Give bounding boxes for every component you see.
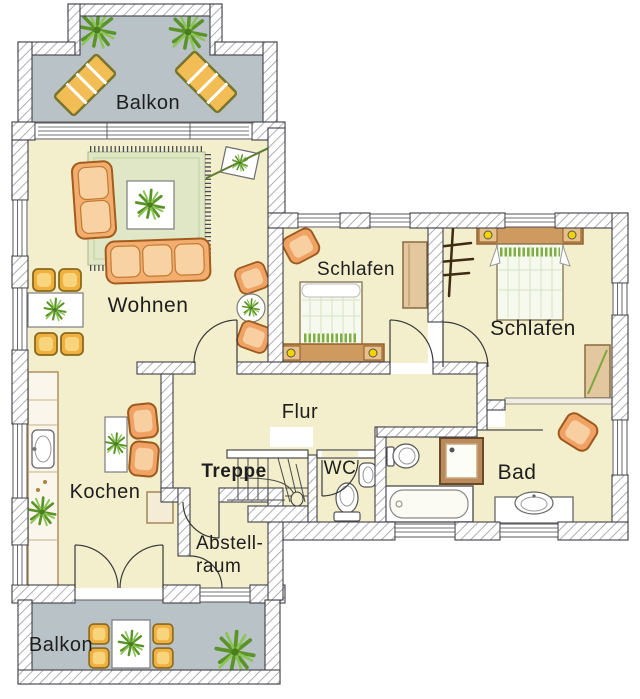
room-label-abstellraum-line1: Abstell- [196,533,263,554]
coffee-table [127,181,174,229]
kitchen-counter [28,372,58,588]
floor-plan: Balkon Wohnen Schlafen Schlafen Flur Tre… [0,0,640,699]
room-label-schlafen-large: Schlafen [490,317,576,340]
sofa-two-seat [71,161,116,240]
sofa-three-seat [105,238,210,284]
toilet [334,483,360,521]
room-label-balkon-top: Balkon [116,92,180,114]
room-label-wohnen: Wohnen [108,294,189,317]
window [13,424,27,498]
washbasin-vanity [495,492,573,523]
window [370,214,410,227]
window [200,588,250,602]
dining-table [28,269,83,355]
window [395,524,455,537]
bathtub [385,486,473,522]
wardrobe [403,242,427,308]
room-label-bad: Bad [498,461,537,484]
desk [585,345,610,398]
room-label-abstellraum-line2: raum [196,556,241,577]
window [13,545,27,585]
room-label-schlafen-small: Schlafen [317,259,395,280]
window-balcony-doors-top [35,123,252,139]
toilet [387,444,419,468]
window [298,214,340,227]
kitchen-side-table [105,417,127,472]
lamp-icon [568,231,576,239]
window [13,288,27,350]
window [13,200,27,256]
kitchen-sink [32,430,54,468]
lamp-icon [287,349,295,357]
room-label-kochen: Kochen [70,481,141,503]
sideboard [505,398,612,404]
shower [440,438,483,484]
room-label-balkon-bottom: Balkon [29,634,93,656]
room-label-wc: WC [324,458,357,479]
window [500,524,558,537]
room-label-flur: Flur [282,401,318,423]
window [613,420,627,475]
room-label-treppe: Treppe [201,461,266,482]
lamp-icon [369,349,377,357]
lamp-icon [484,231,492,239]
window [613,283,627,315]
window [505,214,555,227]
floor-plan-page: Balkon Wohnen Schlafen Schlafen Flur Tre… [0,0,640,699]
washbasin [359,463,376,487]
